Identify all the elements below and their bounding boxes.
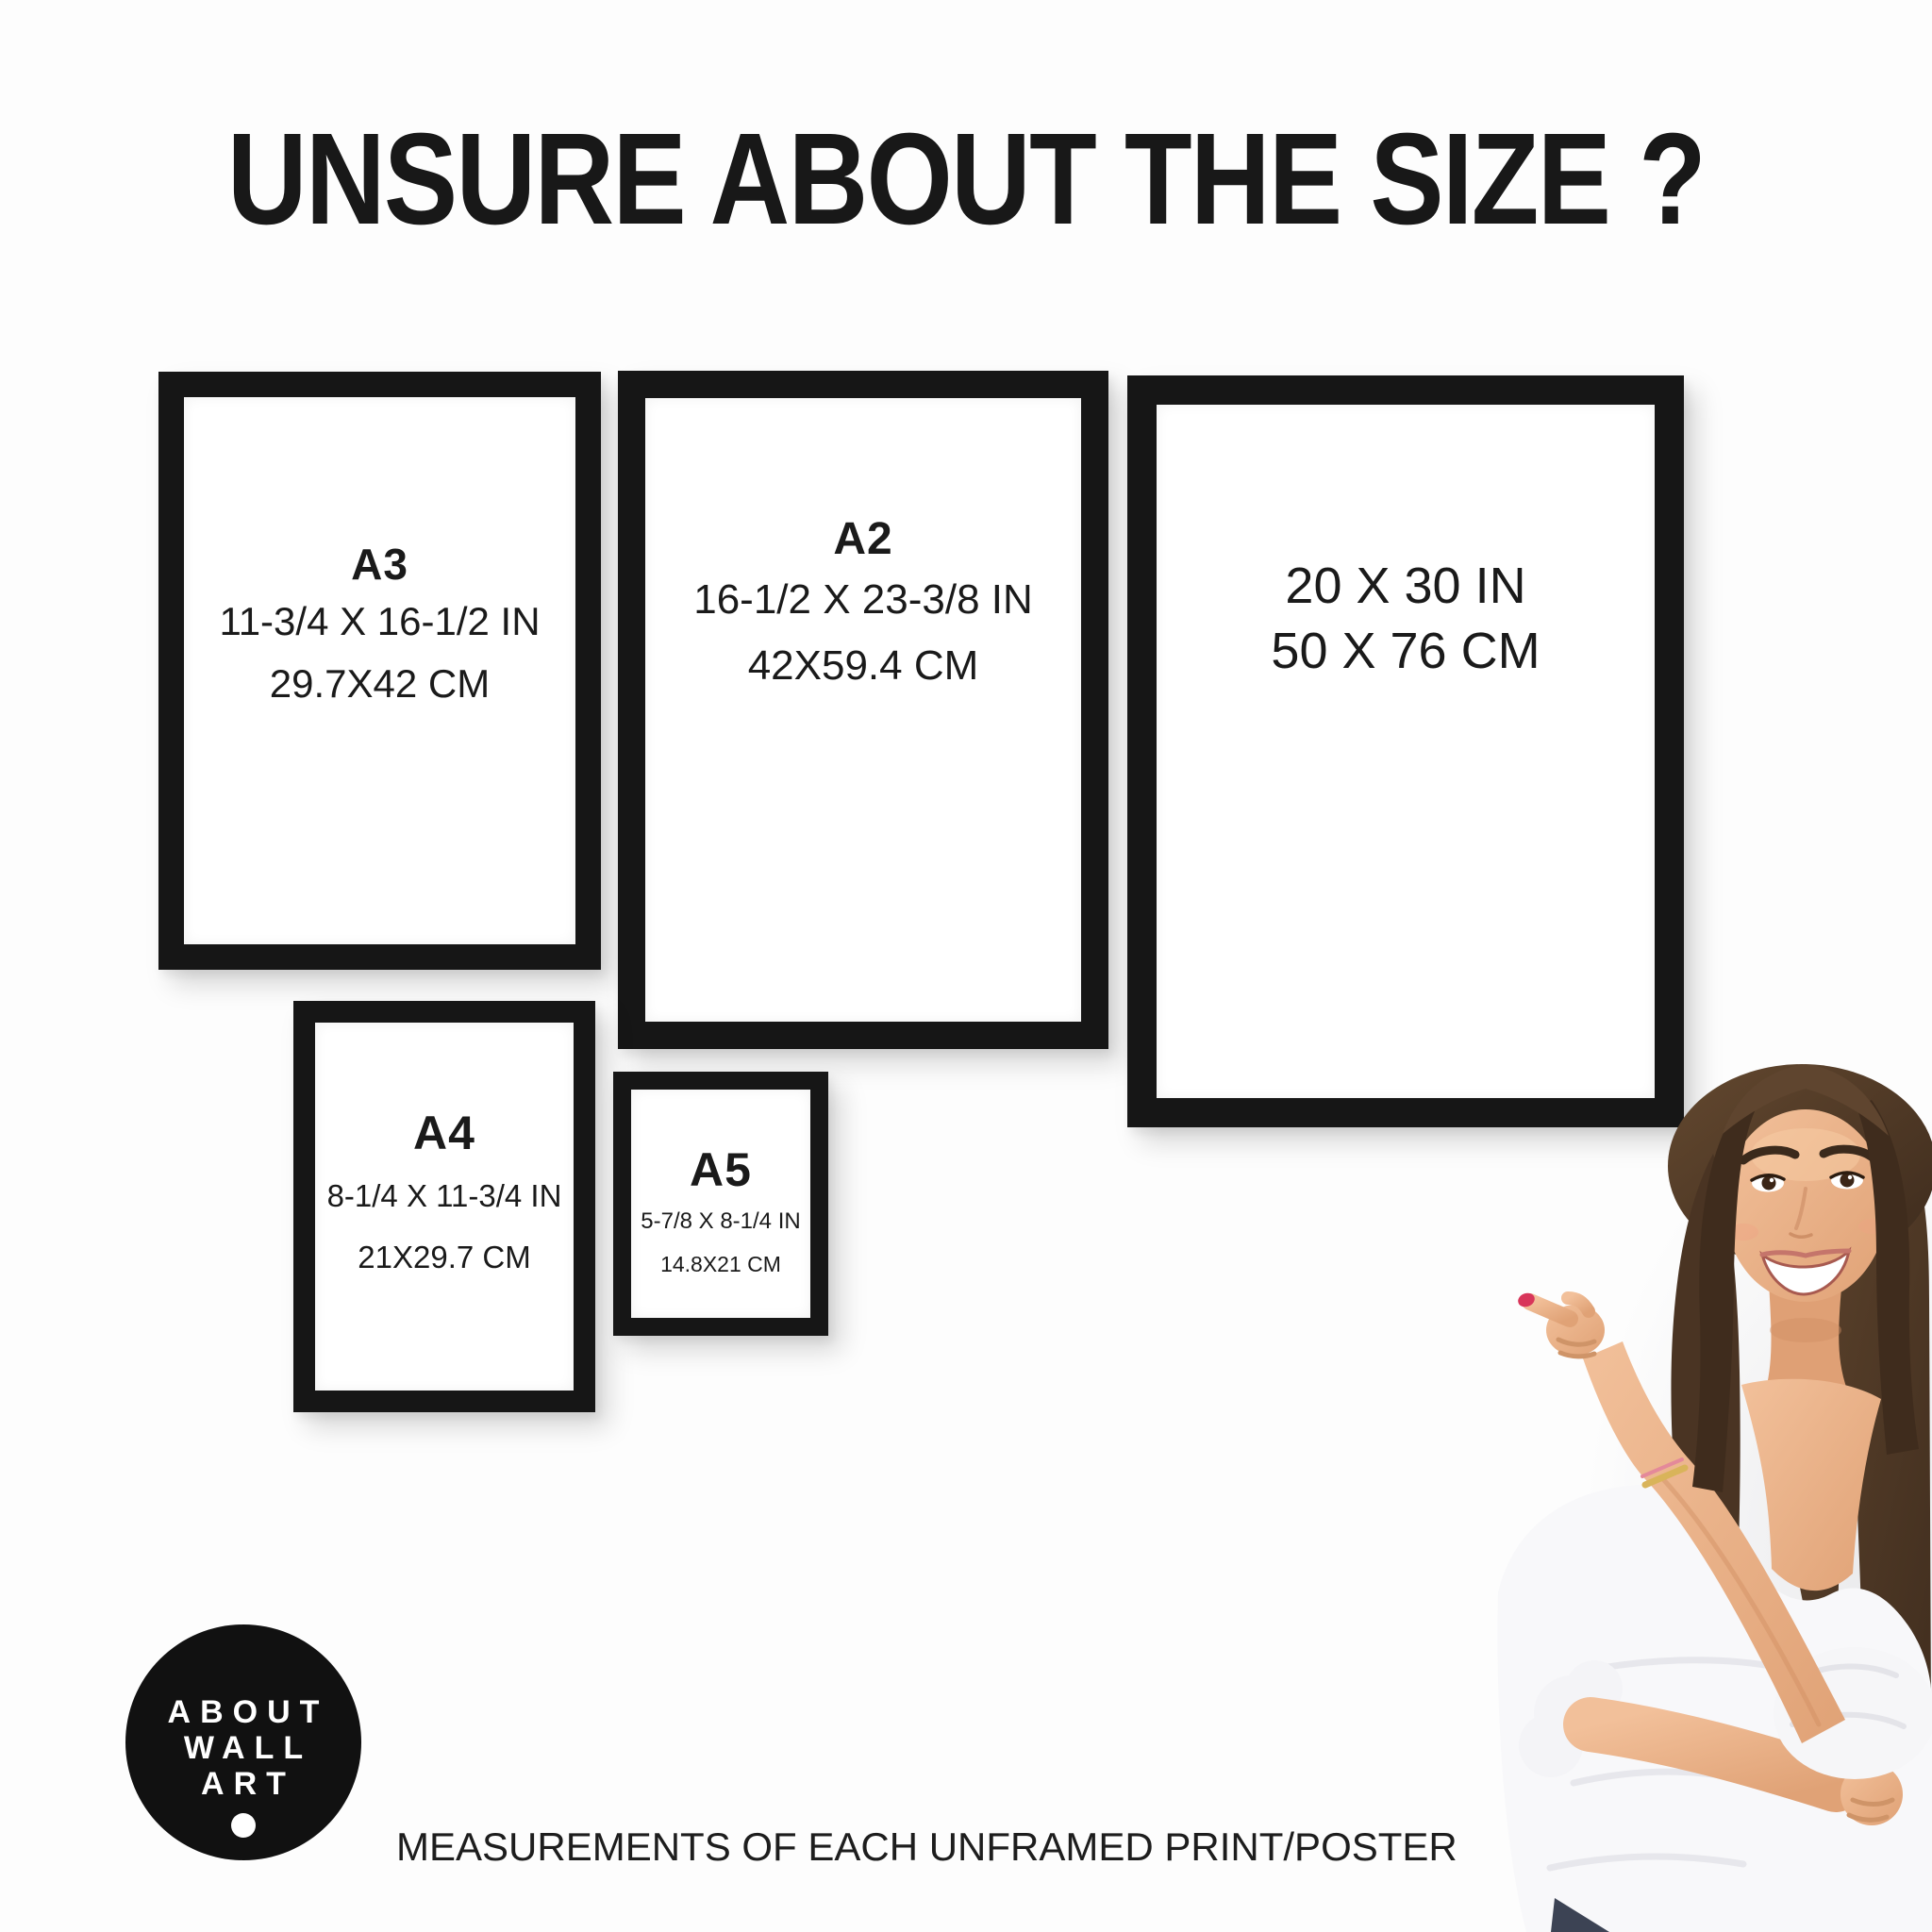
- frame-a3: A3 11-3/4 X 16-1/2 IN 29.7X42 CM: [158, 372, 601, 970]
- size-inches-a4: 8-1/4 X 11-3/4 IN: [327, 1174, 562, 1219]
- page-title: UNSURE ABOUT THE SIZE ?: [145, 111, 1788, 248]
- size-label-a5: A5: [690, 1142, 752, 1198]
- size-label-a2: A2: [833, 513, 892, 567]
- frame-a2: A2 16-1/2 X 23-3/8 IN 42X59.4 CM: [618, 371, 1108, 1049]
- size-inches-20x30: 20 X 30 IN: [1285, 554, 1525, 619]
- size-inches-a5: 5-7/8 X 8-1/4 IN: [641, 1206, 800, 1238]
- model-photo: [1460, 1064, 1932, 1932]
- frame-a5: A5 5-7/8 X 8-1/4 IN 14.8X21 CM: [613, 1072, 828, 1336]
- size-label-a4: A4: [413, 1106, 475, 1161]
- logo-word-art: ART: [192, 1766, 295, 1802]
- size-cm-a4: 21X29.7 CM: [358, 1236, 530, 1280]
- frame-20x30: 20 X 30 IN 50 X 76 CM: [1127, 375, 1684, 1127]
- size-cm-a5: 14.8X21 CM: [660, 1249, 781, 1280]
- size-inches-a2: 16-1/2 X 23-3/8 IN: [693, 571, 1033, 629]
- size-cm-a2: 42X59.4 CM: [748, 637, 979, 695]
- size-cm-20x30: 50 X 76 CM: [1271, 619, 1540, 684]
- logo-dot-icon: [231, 1813, 256, 1838]
- size-label-a3: A3: [351, 539, 408, 590]
- logo-word-wall: WALL: [175, 1730, 312, 1766]
- size-cm-a3: 29.7X42 CM: [270, 656, 490, 712]
- frame-a4: A4 8-1/4 X 11-3/4 IN 21X29.7 CM: [293, 1001, 595, 1412]
- logo-word-about: ABOUT: [158, 1694, 329, 1730]
- brand-logo: ABOUT WALL ART: [125, 1624, 361, 1860]
- woman-pointing-hand: [1516, 1291, 1605, 1357]
- size-guide-infographic: UNSURE ABOUT THE SIZE ? A3 11-3/4 X 16-1…: [0, 0, 1932, 1932]
- size-inches-a3: 11-3/4 X 16-1/2 IN: [219, 593, 540, 650]
- footer-caption: MEASUREMENTS OF EACH UNFRAMED PRINT/POST…: [396, 1824, 1396, 1870]
